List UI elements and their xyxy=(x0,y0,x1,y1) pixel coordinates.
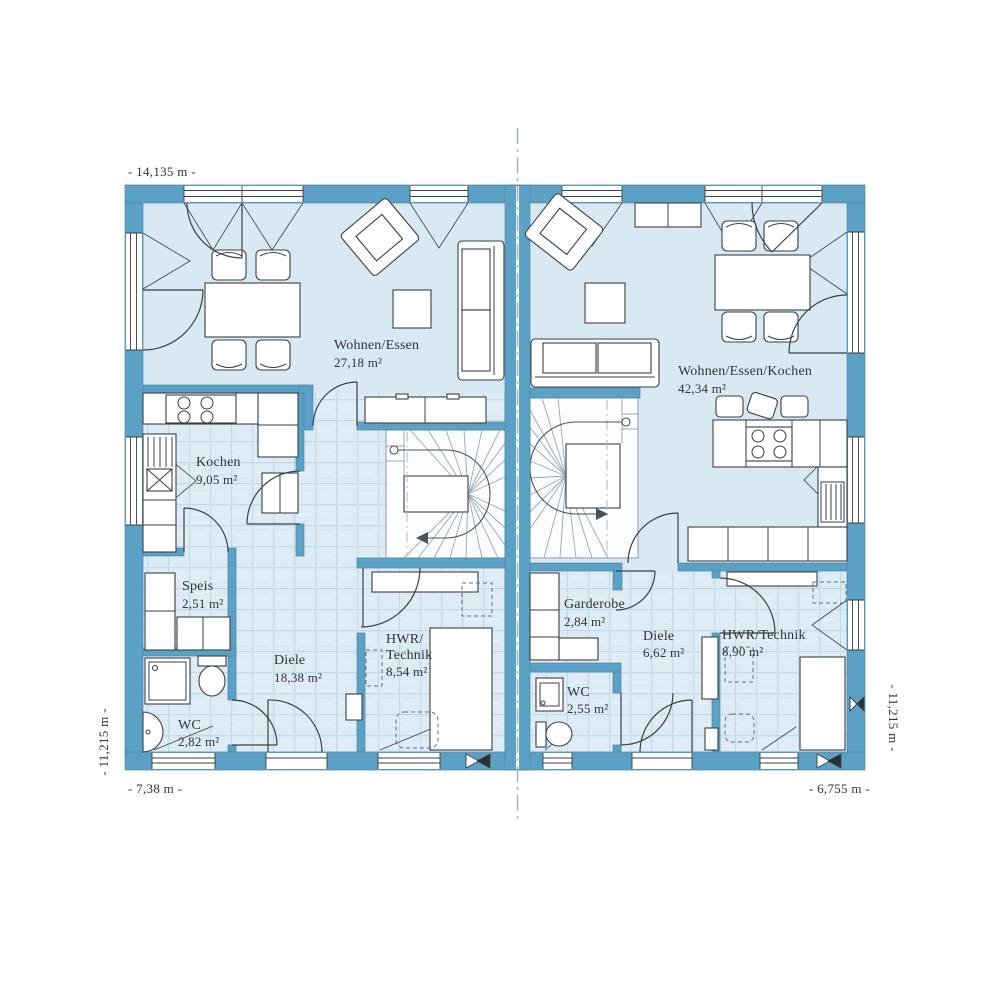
dining-table xyxy=(205,283,300,337)
chair xyxy=(256,250,290,280)
room-label-wohnen-essen: Wohnen/Essen xyxy=(334,338,419,353)
window xyxy=(562,186,622,202)
chair xyxy=(256,340,290,370)
sofa-left xyxy=(458,241,504,380)
chair xyxy=(722,312,756,342)
room-label-speis: Speis xyxy=(182,579,213,594)
floor-plan-drawing: Wohnen/Essen 27,18 m² Kochen 9,05 m² Spe… xyxy=(0,0,1000,1000)
chair xyxy=(764,312,798,342)
window xyxy=(378,753,440,769)
room-area: 6,62 m² xyxy=(643,645,684,660)
chair xyxy=(722,221,756,251)
dining-table xyxy=(715,255,810,310)
tv-lowboard-left xyxy=(365,394,486,423)
bench xyxy=(559,638,598,660)
staircase-right xyxy=(530,398,638,558)
tv-board-right xyxy=(635,203,701,227)
dimension-right: - 11,215 m - xyxy=(886,684,901,751)
window xyxy=(848,437,864,523)
dimension-top: - 14,135 m - xyxy=(128,164,196,179)
room-area: 9,05 m² xyxy=(196,472,237,487)
window xyxy=(705,186,822,202)
console-diele-left xyxy=(346,694,362,720)
room-area: 2,82 m² xyxy=(178,734,219,749)
room-area: 2,55 m² xyxy=(567,701,608,716)
washbasin xyxy=(536,678,563,711)
room-label-diele-right: Diele xyxy=(643,629,674,644)
terrace-door xyxy=(126,233,142,350)
room-label-wc-right: WC xyxy=(567,685,590,700)
room-label-wohnen-essen-kochen: Wohnen/Essen/Kochen xyxy=(678,364,812,379)
window xyxy=(410,186,468,202)
chair xyxy=(764,221,798,251)
stair-landing xyxy=(404,476,468,512)
kitchen-counter xyxy=(818,467,847,527)
shelf xyxy=(727,572,817,586)
room-area: 18,38 m² xyxy=(274,670,322,685)
room-area: 8,54 m² xyxy=(386,664,427,679)
toilet xyxy=(536,722,572,747)
room-area: 2,84 m² xyxy=(564,614,605,629)
room-label-diele-left: Diele xyxy=(274,653,305,668)
staircase-left xyxy=(386,430,505,558)
room-area: 27,18 m² xyxy=(334,355,382,370)
room-label-hwr-right: HWR/Technik xyxy=(722,628,806,643)
room-label-kochen: Kochen xyxy=(196,455,241,470)
heating-unit xyxy=(430,628,492,750)
stair-landing xyxy=(566,444,620,508)
coffee-table-left xyxy=(393,290,431,328)
dimension-left: - 11,215 m - xyxy=(96,708,111,775)
window xyxy=(543,753,572,769)
bar-stool xyxy=(781,396,808,417)
toilet xyxy=(198,656,226,696)
floor-plan-page: Wohnen/Essen 27,18 m² Kochen 9,05 m² Spe… xyxy=(0,0,1000,1000)
room-area: 8,90 m² xyxy=(722,644,763,659)
window xyxy=(152,753,215,769)
window xyxy=(760,753,798,769)
entrance-door xyxy=(266,753,327,769)
room-label-hwr-left-2: Technik xyxy=(386,648,432,663)
room-area: 2,51 m² xyxy=(182,596,223,611)
room-area: 42,34 m² xyxy=(678,381,726,396)
sofa-right xyxy=(531,339,659,387)
window xyxy=(184,186,303,202)
bar-stool xyxy=(716,396,743,417)
chair xyxy=(212,250,246,280)
entrance-door xyxy=(632,753,692,769)
chair xyxy=(212,340,246,370)
heating-unit xyxy=(800,657,845,750)
room-label-wc-left: WC xyxy=(178,718,201,733)
window xyxy=(126,437,142,525)
room-label-garderobe: Garderobe xyxy=(564,597,625,612)
dimension-bottom-right: - 6,755 m - xyxy=(809,781,870,796)
window xyxy=(848,600,864,650)
shower xyxy=(145,658,190,704)
coffee-table-right xyxy=(585,283,625,323)
dimension-bottom-left: - 7,38 m - xyxy=(128,781,182,796)
terrace-door xyxy=(848,232,864,353)
room-label-hwr-left: HWR/ xyxy=(386,632,423,647)
